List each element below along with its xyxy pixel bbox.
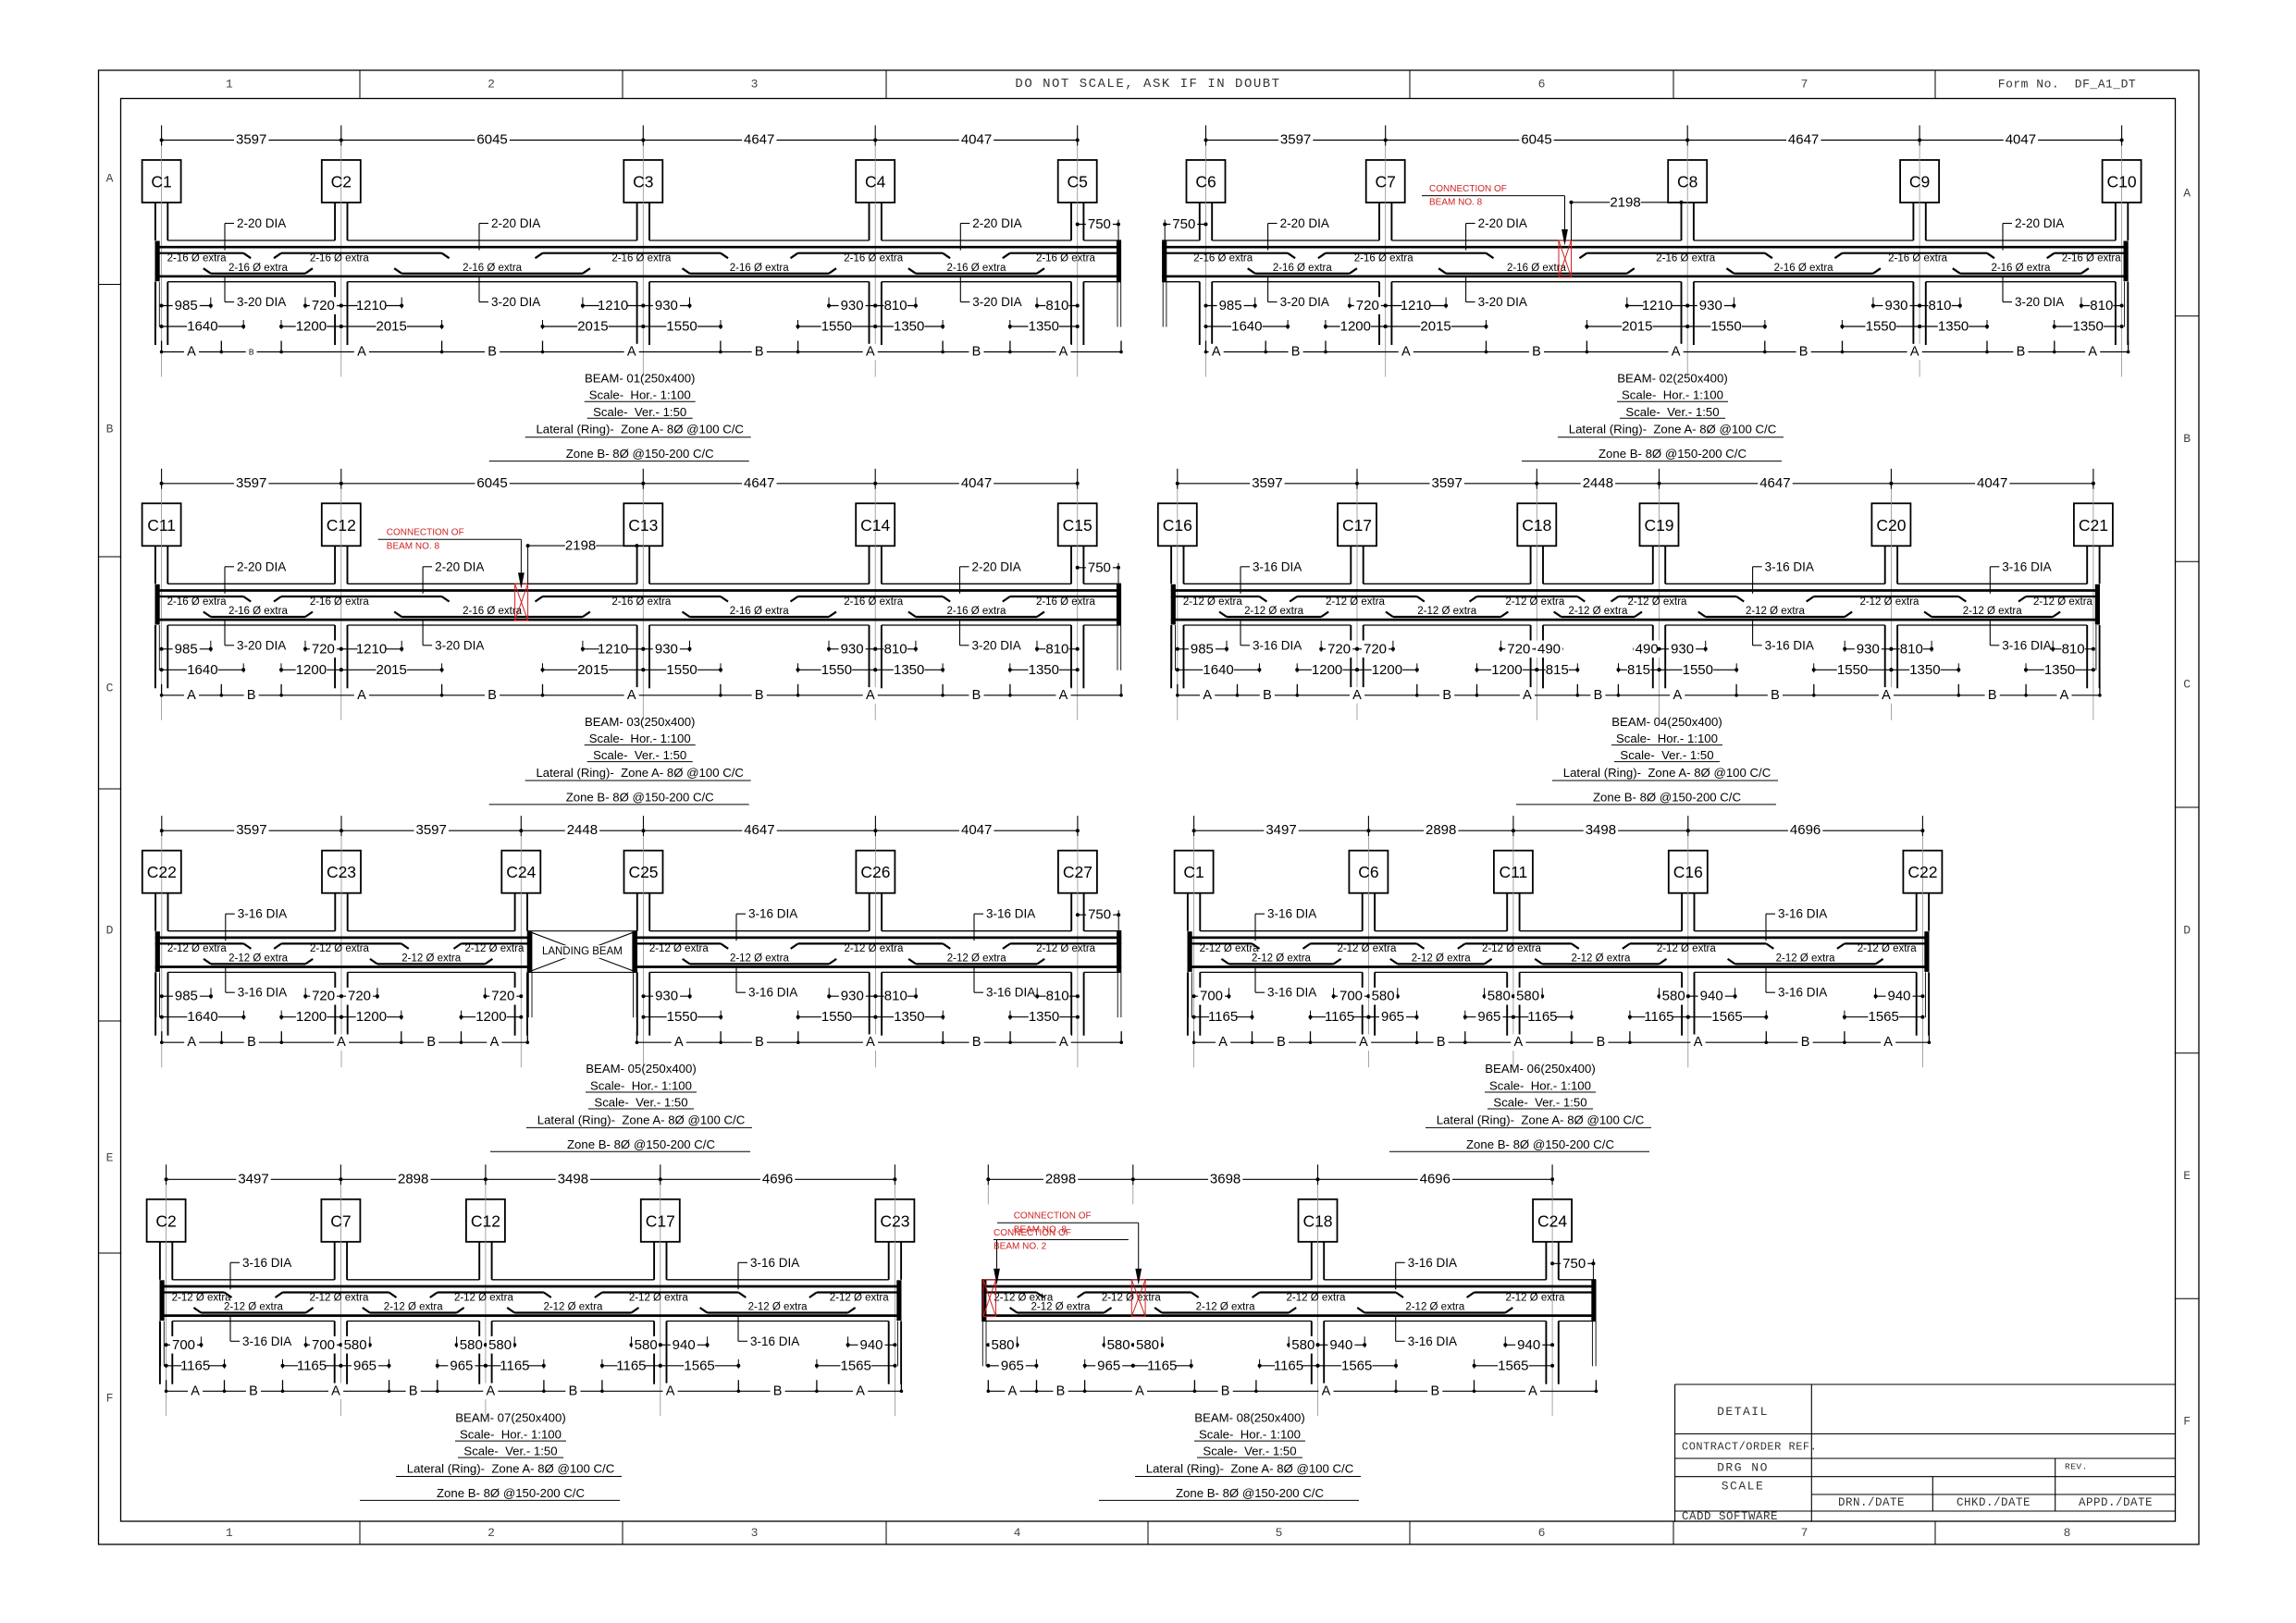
svg-text:930: 930 <box>655 641 678 657</box>
svg-text:2-20 DIA: 2-20 DIA <box>972 559 1021 573</box>
svg-text:3-16 DIA: 3-16 DIA <box>986 986 1035 1000</box>
svg-text:A: A <box>1059 688 1068 703</box>
svg-text:B: B <box>249 348 254 357</box>
svg-text:Zone B- 8Ø @150-200 C/C: Zone B- 8Ø @150-200 C/C <box>566 447 714 461</box>
svg-text:Lateral (Ring)- Zone A- 8Ø @1: Lateral (Ring)- Zone A- 8Ø @100 C/C <box>536 766 744 780</box>
svg-text:3-16 DIA: 3-16 DIA <box>750 1256 799 1270</box>
svg-text:A: A <box>187 345 196 360</box>
svg-text:2-12 Ø extra: 2-12 Ø extra <box>947 953 1007 965</box>
svg-text:2-16 Ø extra: 2-16 Ø extra <box>1273 263 1333 274</box>
svg-text:580: 580 <box>488 1337 512 1353</box>
svg-text:6: 6 <box>1538 1526 1546 1540</box>
svg-text:2-16 Ø extra: 2-16 Ø extra <box>463 263 523 274</box>
svg-text:3-16 DIA: 3-16 DIA <box>1765 638 1814 652</box>
svg-text:2-12 Ø extra: 2-12 Ø extra <box>1858 943 1918 954</box>
svg-text:720: 720 <box>1356 298 1379 314</box>
svg-text:3-16 DIA: 3-16 DIA <box>1253 638 1302 652</box>
svg-text:C18: C18 <box>1302 1211 1332 1230</box>
svg-text:Scale- Hor.- 1:100: Scale- Hor.- 1:100 <box>590 1078 692 1092</box>
svg-text:C26: C26 <box>860 863 890 881</box>
svg-text:Lateral (Ring)- Zone A- 8Ø @1: Lateral (Ring)- Zone A- 8Ø @100 C/C <box>1437 1113 1645 1126</box>
svg-text:B: B <box>426 1035 436 1050</box>
svg-text:580: 580 <box>1372 989 1395 1004</box>
svg-text:A: A <box>866 688 875 703</box>
svg-text:985: 985 <box>175 989 198 1004</box>
svg-text:B: B <box>569 1383 578 1398</box>
svg-text:2-20 DIA: 2-20 DIA <box>1280 216 1329 230</box>
svg-text:SCALE: SCALE <box>1722 1480 1765 1494</box>
svg-text:C6: C6 <box>1195 173 1216 191</box>
svg-text:2898: 2898 <box>1045 1171 1076 1187</box>
svg-text:940: 940 <box>1517 1337 1540 1353</box>
svg-text:1200: 1200 <box>296 319 327 335</box>
svg-text:Scale- Ver.- 1:50: Scale- Ver.- 1:50 <box>1625 405 1719 419</box>
svg-text:CADD SOFTWARE: CADD SOFTWARE <box>1682 1510 1778 1523</box>
svg-text:965: 965 <box>1097 1358 1120 1373</box>
svg-text:DO NOT SCALE, ASK IF IN DOUBT: DO NOT SCALE, ASK IF IN DOUBT <box>1015 77 1280 92</box>
svg-text:1640: 1640 <box>187 662 217 678</box>
svg-text:1350: 1350 <box>894 1009 924 1025</box>
svg-text:6045: 6045 <box>476 132 507 148</box>
svg-text:2-12 Ø extra: 2-12 Ø extra <box>1200 943 1260 954</box>
svg-text:2-16 Ø extra: 2-16 Ø extra <box>310 596 370 608</box>
svg-text:580: 580 <box>991 1337 1014 1353</box>
svg-text:2-20 DIA: 2-20 DIA <box>237 559 286 573</box>
svg-text:2-12 Ø extra: 2-12 Ø extra <box>1657 943 1717 954</box>
svg-text:B: B <box>1799 345 1808 360</box>
svg-text:B: B <box>773 1383 783 1398</box>
svg-text:BEAM- 02(250x400): BEAM- 02(250x400) <box>1617 372 1727 386</box>
svg-text:3-20 DIA: 3-20 DIA <box>237 638 286 652</box>
svg-text:A: A <box>1882 688 1891 703</box>
svg-text:2015: 2015 <box>1420 319 1450 335</box>
svg-text:2-16 Ø extra: 2-16 Ø extra <box>1991 263 2051 274</box>
svg-text:1350: 1350 <box>1029 662 1059 678</box>
svg-text:E: E <box>2183 1169 2191 1183</box>
svg-text:1565: 1565 <box>1341 1358 1372 1373</box>
svg-text:2-12 Ø extra: 2-12 Ø extra <box>1196 1302 1256 1313</box>
svg-text:1565: 1565 <box>1498 1358 1528 1373</box>
svg-text:3-20 DIA: 3-20 DIA <box>1478 295 1527 309</box>
svg-text:Lateral (Ring)- Zone A- 8Ø @1: Lateral (Ring)- Zone A- 8Ø @100 C/C <box>1569 423 1777 436</box>
svg-text:B: B <box>1801 1035 1810 1050</box>
svg-text:B: B <box>755 345 764 360</box>
svg-text:4047: 4047 <box>961 132 992 148</box>
svg-text:4647: 4647 <box>1788 132 1819 148</box>
svg-text:750: 750 <box>1088 559 1111 575</box>
svg-text:A: A <box>486 1383 495 1398</box>
svg-text:3597: 3597 <box>1252 475 1282 491</box>
svg-text:C22: C22 <box>1907 863 1937 881</box>
svg-text:3597: 3597 <box>416 822 447 838</box>
svg-text:1165: 1165 <box>1644 1009 1673 1025</box>
svg-text:3: 3 <box>751 78 759 92</box>
svg-text:A: A <box>1008 1383 1018 1398</box>
svg-text:3-20 DIA: 3-20 DIA <box>972 295 1021 309</box>
svg-text:C4: C4 <box>865 173 886 191</box>
svg-text:C1: C1 <box>151 173 171 191</box>
svg-text:930: 930 <box>841 641 864 657</box>
svg-text:810: 810 <box>1046 989 1069 1004</box>
svg-text:490: 490 <box>1636 641 1659 657</box>
svg-text:Lateral (Ring)- Zone A- 8Ø @1: Lateral (Ring)- Zone A- 8Ø @100 C/C <box>407 1461 615 1475</box>
svg-text:720: 720 <box>1327 641 1351 657</box>
svg-text:3-16 DIA: 3-16 DIA <box>750 1334 799 1348</box>
svg-text:2015: 2015 <box>1622 319 1652 335</box>
svg-text:1550: 1550 <box>821 1009 852 1025</box>
svg-text:B: B <box>1771 688 1780 703</box>
svg-text:815: 815 <box>1627 662 1650 678</box>
svg-text:580: 580 <box>1291 1337 1315 1353</box>
svg-text:3-16 DIA: 3-16 DIA <box>242 1334 291 1348</box>
svg-text:B: B <box>972 688 981 703</box>
svg-text:2-20 DIA: 2-20 DIA <box>972 216 1021 230</box>
svg-text:C11: C11 <box>147 516 176 535</box>
svg-text:4647: 4647 <box>1759 475 1790 491</box>
svg-text:4047: 4047 <box>1977 475 2007 491</box>
svg-text:E: E <box>106 1151 114 1165</box>
svg-text:2-20 DIA: 2-20 DIA <box>435 559 484 573</box>
svg-text:BEAM- 07(250x400): BEAM- 07(250x400) <box>455 1410 565 1424</box>
svg-text:2198: 2198 <box>1610 194 1640 210</box>
svg-text:BEAM NO. 8: BEAM NO. 8 <box>387 541 440 551</box>
svg-text:2015: 2015 <box>376 662 407 678</box>
svg-text:Scale- Ver.- 1:50: Scale- Ver.- 1:50 <box>1620 748 1713 762</box>
svg-text:A: A <box>674 1035 684 1050</box>
svg-text:B: B <box>106 423 114 436</box>
svg-text:Zone B- 8Ø @150-200 C/C: Zone B- 8Ø @150-200 C/C <box>1593 791 1741 805</box>
svg-text:Scale- Hor.- 1:100: Scale- Hor.- 1:100 <box>1622 388 1723 402</box>
svg-text:810: 810 <box>884 641 907 657</box>
svg-text:C: C <box>106 682 114 695</box>
svg-text:3498: 3498 <box>1586 822 1616 838</box>
svg-text:A: A <box>666 1383 675 1398</box>
svg-text:4696: 4696 <box>1790 822 1821 838</box>
svg-text:3-16 DIA: 3-16 DIA <box>748 986 797 1000</box>
svg-text:940: 940 <box>859 1337 883 1353</box>
svg-text:1200: 1200 <box>1372 662 1402 678</box>
svg-text:965: 965 <box>353 1358 376 1373</box>
svg-text:1565: 1565 <box>684 1358 714 1373</box>
svg-text:2-12 Ø extra: 2-12 Ø extra <box>401 953 462 965</box>
svg-text:A: A <box>1513 1035 1523 1050</box>
svg-text:2015: 2015 <box>376 319 407 335</box>
svg-text:BEAM- 01(250x400): BEAM- 01(250x400) <box>585 372 695 386</box>
svg-text:4: 4 <box>1014 1526 1021 1540</box>
svg-text:720: 720 <box>491 989 514 1004</box>
svg-text:720: 720 <box>1507 641 1530 657</box>
svg-text:C2: C2 <box>155 1211 176 1230</box>
svg-text:2-12 Ø extra: 2-12 Ø extra <box>1746 606 1806 617</box>
svg-text:3597: 3597 <box>236 475 266 491</box>
svg-text:490: 490 <box>1537 641 1561 657</box>
svg-text:Zone B- 8Ø @150-200 C/C: Zone B- 8Ø @150-200 C/C <box>1466 1137 1614 1151</box>
svg-text:2-12 Ø extra: 2-12 Ø extra <box>1571 953 1631 965</box>
svg-text:Zone B- 8Ø @150-200 C/C: Zone B- 8Ø @150-200 C/C <box>566 791 714 805</box>
svg-text:2-20 DIA: 2-20 DIA <box>491 216 540 230</box>
svg-text:580: 580 <box>1662 989 1685 1004</box>
svg-text:A: A <box>1203 688 1212 703</box>
svg-text:720: 720 <box>1364 641 1387 657</box>
svg-text:2-12 Ø extra: 2-12 Ø extra <box>1506 1292 1566 1303</box>
svg-text:B: B <box>249 1383 258 1398</box>
svg-text:2-16 Ø extra: 2-16 Ø extra <box>2062 253 2122 264</box>
svg-text:APPD./DATE: APPD./DATE <box>2079 1496 2153 1509</box>
svg-text:1165: 1165 <box>616 1358 646 1373</box>
svg-text:1350: 1350 <box>1029 1009 1059 1025</box>
svg-text:C16: C16 <box>1673 863 1703 881</box>
svg-text:A: A <box>1528 1383 1537 1398</box>
svg-text:B: B <box>755 688 764 703</box>
svg-text:2-12 Ø extra: 2-12 Ø extra <box>748 1302 809 1313</box>
svg-text:Scale- Ver.- 1:50: Scale- Ver.- 1:50 <box>1203 1445 1296 1458</box>
svg-text:2-16 Ø extra: 2-16 Ø extra <box>844 596 904 608</box>
svg-text:Form No. DF_A1_DT: Form No. DF_A1_DT <box>1998 78 2136 92</box>
svg-text:8: 8 <box>2064 1526 2071 1540</box>
svg-text:D: D <box>2183 923 2191 937</box>
svg-text:BEAM- 04(250x400): BEAM- 04(250x400) <box>1611 715 1722 729</box>
svg-text:580: 580 <box>1107 1337 1130 1353</box>
svg-text:810: 810 <box>884 989 907 1004</box>
svg-text:3-20 DIA: 3-20 DIA <box>1280 295 1329 309</box>
svg-text:2-12 Ø extra: 2-12 Ø extra <box>309 1292 369 1303</box>
svg-text:REV.: REV. <box>2065 1462 2088 1472</box>
svg-text:1550: 1550 <box>666 319 697 335</box>
svg-text:3-16 DIA: 3-16 DIA <box>238 907 287 921</box>
svg-text:Lateral (Ring)- Zone A- 8Ø @1: Lateral (Ring)- Zone A- 8Ø @100 C/C <box>536 423 744 436</box>
svg-text:2-16 Ø extra: 2-16 Ø extra <box>167 253 228 264</box>
svg-text:C10: C10 <box>2107 173 2137 191</box>
svg-text:750: 750 <box>1088 216 1111 232</box>
svg-text:3-16 DIA: 3-16 DIA <box>1778 986 1827 1000</box>
svg-text:3597: 3597 <box>1432 475 1463 491</box>
svg-text:1210: 1210 <box>356 641 387 657</box>
svg-text:3-16 DIA: 3-16 DIA <box>1267 907 1316 921</box>
svg-text:C2: C2 <box>331 173 352 191</box>
svg-text:6045: 6045 <box>1521 132 1551 148</box>
svg-text:2-12 Ø extra: 2-12 Ø extra <box>830 1292 890 1303</box>
svg-text:1200: 1200 <box>1312 662 1342 678</box>
svg-text:2-12 Ø extra: 2-12 Ø extra <box>167 943 228 954</box>
svg-text:1200: 1200 <box>1340 319 1371 335</box>
svg-text:3-20 DIA: 3-20 DIA <box>972 638 1021 652</box>
svg-text:Scale- Ver.- 1:50: Scale- Ver.- 1:50 <box>594 1096 687 1110</box>
svg-text:CONTRACT/ORDER REF.: CONTRACT/ORDER REF. <box>1682 1441 1817 1454</box>
svg-text:A: A <box>2183 186 2191 200</box>
svg-text:A: A <box>1401 345 1411 360</box>
svg-text:C5: C5 <box>1068 173 1088 191</box>
svg-text:C25: C25 <box>628 863 658 881</box>
svg-text:4696: 4696 <box>1420 1171 1450 1187</box>
svg-text:2-12 Ø extra: 2-12 Ø extra <box>2033 596 2093 608</box>
svg-text:2-12 Ø extra: 2-12 Ø extra <box>1568 606 1628 617</box>
svg-text:B: B <box>2183 432 2191 446</box>
svg-text:B: B <box>488 345 497 360</box>
svg-text:B: B <box>1442 688 1451 703</box>
svg-text:A: A <box>331 1383 340 1398</box>
svg-text:BEAM- 08(250x400): BEAM- 08(250x400) <box>1194 1410 1304 1424</box>
svg-text:985: 985 <box>1191 641 1214 657</box>
svg-text:1165: 1165 <box>1208 1009 1238 1025</box>
svg-text:930: 930 <box>1671 641 1694 657</box>
svg-text:2-12 Ø extra: 2-12 Ø extra <box>649 943 710 954</box>
svg-text:BEAM- 03(250x400): BEAM- 03(250x400) <box>585 715 695 729</box>
svg-text:C19: C19 <box>1644 516 1673 535</box>
svg-text:2-16 Ø extra: 2-16 Ø extra <box>611 253 672 264</box>
svg-text:CONNECTION OF: CONNECTION OF <box>994 1228 1071 1238</box>
svg-text:B: B <box>1277 1035 1286 1050</box>
svg-text:1565: 1565 <box>841 1358 871 1373</box>
svg-text:C18: C18 <box>1522 516 1551 535</box>
svg-text:3597: 3597 <box>236 822 266 838</box>
svg-text:A: A <box>1694 1035 1703 1050</box>
svg-text:2448: 2448 <box>567 822 598 838</box>
svg-text:940: 940 <box>1887 989 1910 1004</box>
svg-text:1165: 1165 <box>500 1358 529 1373</box>
svg-text:2-16 Ø extra: 2-16 Ø extra <box>1888 253 1948 264</box>
svg-text:A: A <box>1359 1035 1368 1050</box>
svg-text:3-16 DIA: 3-16 DIA <box>986 907 1035 921</box>
svg-text:3: 3 <box>751 1526 759 1540</box>
svg-text:A: A <box>866 1035 875 1050</box>
svg-text:2-16 Ø extra: 2-16 Ø extra <box>1354 253 1414 264</box>
svg-text:7: 7 <box>1801 78 1808 92</box>
svg-text:DETAIL: DETAIL <box>1717 1405 1769 1419</box>
svg-text:3-16 DIA: 3-16 DIA <box>238 986 287 1000</box>
svg-text:965: 965 <box>450 1358 473 1373</box>
svg-text:750: 750 <box>1562 1256 1586 1272</box>
svg-text:B: B <box>1263 688 1272 703</box>
svg-text:3497: 3497 <box>238 1171 268 1187</box>
svg-text:2448: 2448 <box>1583 475 1613 491</box>
svg-text:DRN./DATE: DRN./DATE <box>1838 1496 1905 1509</box>
svg-text:2015: 2015 <box>577 319 608 335</box>
svg-text:A: A <box>191 1383 200 1398</box>
svg-text:C7: C7 <box>330 1211 351 1230</box>
svg-text:2-20 DIA: 2-20 DIA <box>237 216 286 230</box>
svg-text:B: B <box>1056 1383 1066 1398</box>
svg-text:2-16 Ø extra: 2-16 Ø extra <box>463 606 523 617</box>
svg-text:A: A <box>1322 1383 1331 1398</box>
svg-text:C16: C16 <box>1163 516 1192 535</box>
svg-text:B: B <box>247 1035 256 1050</box>
svg-text:A: A <box>187 688 196 703</box>
svg-text:1165: 1165 <box>1325 1009 1354 1025</box>
svg-text:1350: 1350 <box>1029 319 1059 335</box>
svg-text:930: 930 <box>1884 298 1907 314</box>
svg-text:1550: 1550 <box>666 662 697 678</box>
svg-text:B: B <box>1988 688 1997 703</box>
svg-text:2-12 Ø extra: 2-12 Ø extra <box>310 943 370 954</box>
svg-text:3-16 DIA: 3-16 DIA <box>1765 559 1814 573</box>
svg-text:Lateral (Ring)- Zone A- 8Ø @1: Lateral (Ring)- Zone A- 8Ø @100 C/C <box>1563 766 1771 780</box>
svg-text:C: C <box>2183 678 2191 692</box>
svg-text:3-16 DIA: 3-16 DIA <box>1778 907 1827 921</box>
svg-text:1350: 1350 <box>2044 662 2075 678</box>
svg-text:C27: C27 <box>1063 863 1092 881</box>
svg-text:750: 750 <box>1172 216 1195 232</box>
svg-text:2-16 Ø extra: 2-16 Ø extra <box>1774 263 1834 274</box>
svg-text:7: 7 <box>1801 1526 1808 1540</box>
svg-text:2-12 Ø extra: 2-12 Ø extra <box>1036 943 1096 954</box>
svg-text:1550: 1550 <box>1683 662 1713 678</box>
svg-text:700: 700 <box>312 1337 335 1353</box>
svg-text:2: 2 <box>488 1526 495 1540</box>
svg-text:1: 1 <box>226 78 233 92</box>
svg-text:A: A <box>1910 345 1920 360</box>
svg-text:2-12 Ø extra: 2-12 Ø extra <box>629 1292 689 1303</box>
svg-text:CONNECTION OF: CONNECTION OF <box>387 528 464 538</box>
svg-text:A: A <box>627 688 636 703</box>
svg-text:A: A <box>1212 345 1221 360</box>
svg-text:2-12 Ø extra: 2-12 Ø extra <box>1287 1292 1347 1303</box>
svg-text:750: 750 <box>1088 907 1111 923</box>
svg-text:580: 580 <box>635 1337 658 1353</box>
svg-text:BEAM NO. 2: BEAM NO. 2 <box>994 1242 1047 1252</box>
svg-text:2-12 Ø extra: 2-12 Ø extra <box>730 953 790 965</box>
svg-text:4047: 4047 <box>961 475 992 491</box>
svg-text:930: 930 <box>841 989 864 1004</box>
svg-text:2-12 Ø extra: 2-12 Ø extra <box>464 943 525 954</box>
svg-text:B: B <box>2017 345 2026 360</box>
svg-text:2-12 Ø extra: 2-12 Ø extra <box>1337 943 1397 954</box>
svg-text:Zone B- 8Ø @150-200 C/C: Zone B- 8Ø @150-200 C/C <box>437 1486 585 1500</box>
svg-text:2-16 Ø extra: 2-16 Ø extra <box>947 606 1007 617</box>
svg-text:1350: 1350 <box>1938 319 1969 335</box>
svg-text:810: 810 <box>2062 641 2085 657</box>
svg-text:2-12 Ø extra: 2-12 Ø extra <box>1859 596 1920 608</box>
svg-text:1210: 1210 <box>356 298 387 314</box>
svg-text:1: 1 <box>226 1526 233 1540</box>
svg-text:2-16 Ø extra: 2-16 Ø extra <box>167 596 228 608</box>
svg-text:D: D <box>106 924 114 938</box>
svg-text:4647: 4647 <box>744 822 774 838</box>
svg-text:810: 810 <box>1045 641 1068 657</box>
svg-text:B: B <box>1532 345 1541 360</box>
svg-text:1550: 1550 <box>821 319 852 335</box>
svg-text:1350: 1350 <box>894 662 924 678</box>
svg-text:Lateral (Ring)- Zone A- 8Ø @1: Lateral (Ring)- Zone A- 8Ø @100 C/C <box>537 1113 746 1126</box>
svg-text:BEAM NO. 8: BEAM NO. 8 <box>1429 198 1483 208</box>
svg-text:580: 580 <box>1136 1337 1159 1353</box>
svg-text:Zone B- 8Ø @150-200 C/C: Zone B- 8Ø @150-200 C/C <box>567 1137 715 1151</box>
svg-text:4696: 4696 <box>762 1171 793 1187</box>
svg-text:1210: 1210 <box>1401 298 1431 314</box>
svg-text:2-12 Ø extra: 2-12 Ø extra <box>1505 596 1565 608</box>
svg-text:1550: 1550 <box>821 662 852 678</box>
svg-text:985: 985 <box>1219 298 1242 314</box>
svg-text:930: 930 <box>655 989 678 1004</box>
svg-text:BEAM- 06(250x400): BEAM- 06(250x400) <box>1485 1062 1595 1076</box>
svg-text:2-12 Ø extra: 2-12 Ø extra <box>1482 943 1542 954</box>
svg-text:A: A <box>1135 1383 1144 1398</box>
svg-text:580: 580 <box>1516 989 1539 1004</box>
svg-text:4047: 4047 <box>2006 132 2036 148</box>
svg-text:2-16 Ø extra: 2-16 Ø extra <box>947 263 1007 274</box>
svg-text:A: A <box>1352 688 1362 703</box>
svg-text:B: B <box>972 345 981 360</box>
svg-text:6: 6 <box>1538 78 1546 92</box>
svg-text:3597: 3597 <box>1280 132 1311 148</box>
svg-text:2-16 Ø extra: 2-16 Ø extra <box>1656 253 1716 264</box>
svg-text:C13: C13 <box>628 516 658 535</box>
svg-text:C14: C14 <box>860 516 890 535</box>
svg-text:720: 720 <box>312 641 335 657</box>
svg-text:A: A <box>490 1035 500 1050</box>
svg-text:A: A <box>187 1035 196 1050</box>
svg-text:Scale- Ver.- 1:50: Scale- Ver.- 1:50 <box>593 405 686 419</box>
svg-text:3597: 3597 <box>236 132 266 148</box>
